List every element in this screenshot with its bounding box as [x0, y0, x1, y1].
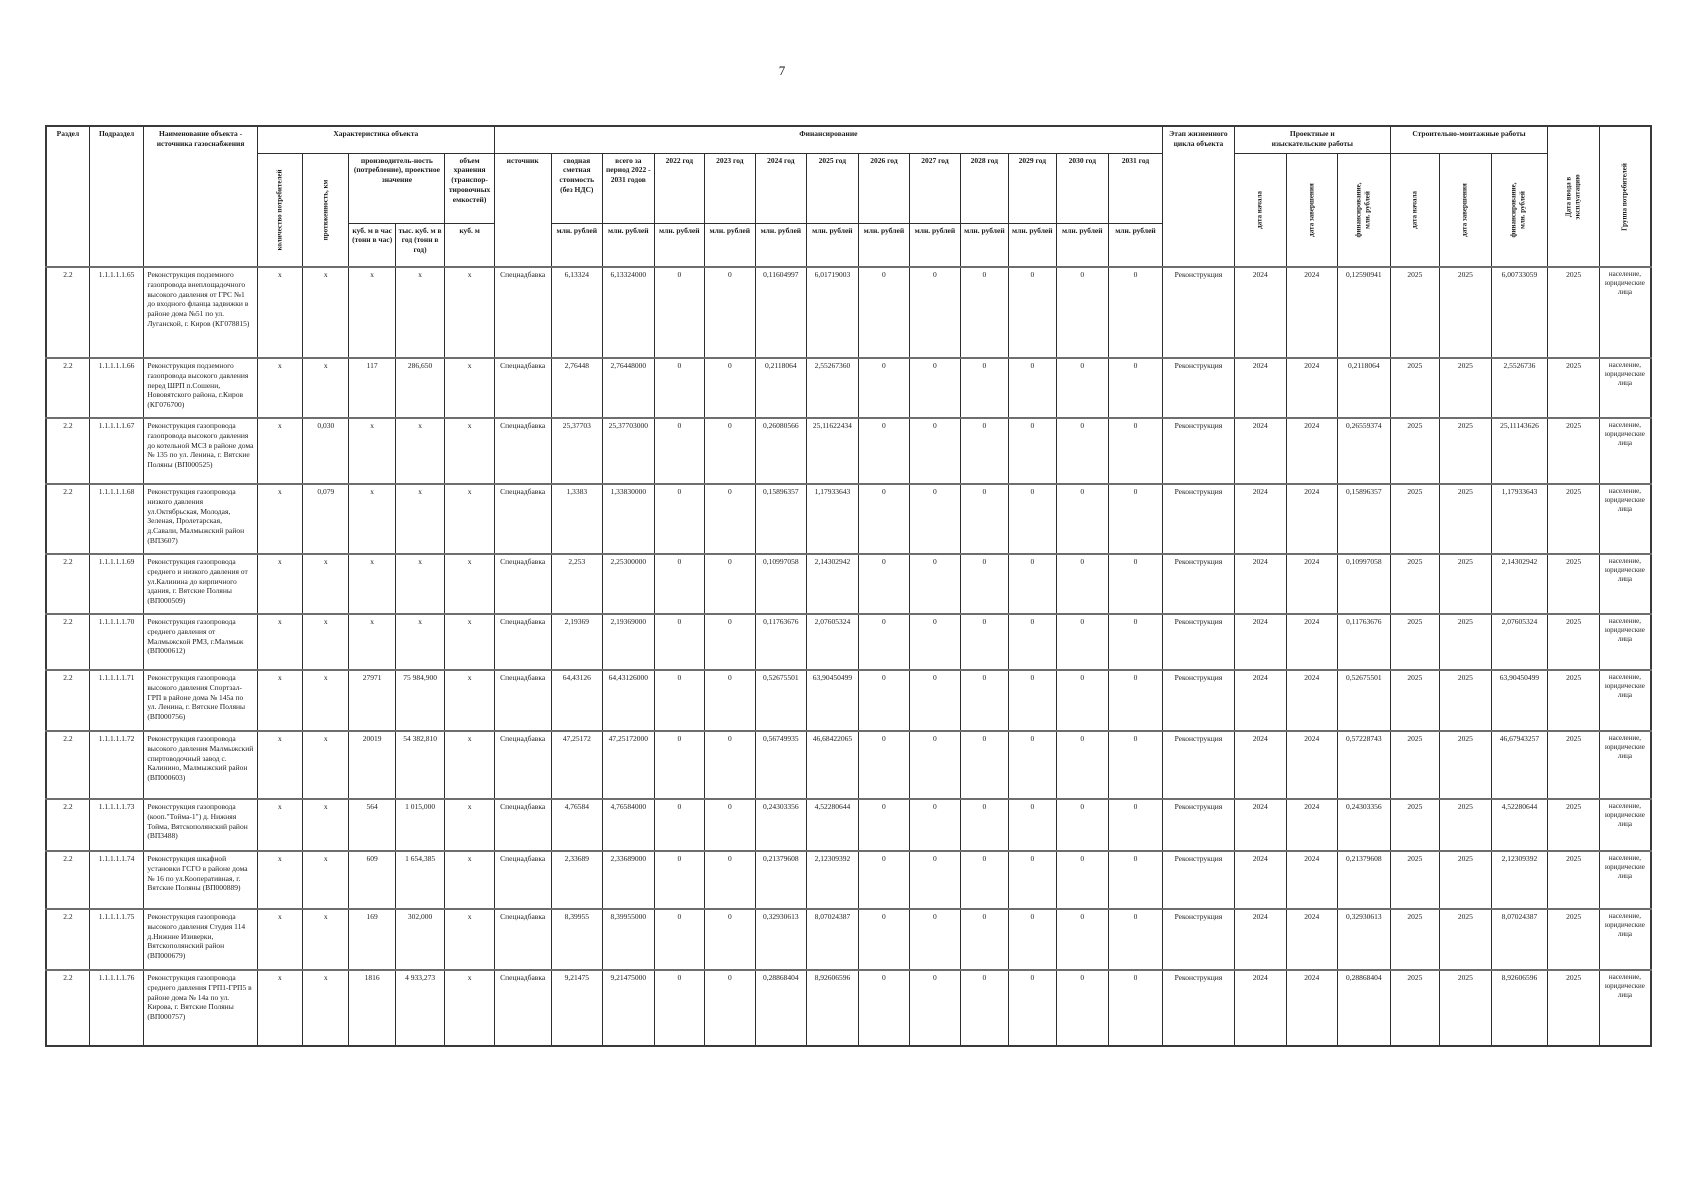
cell-podrazdel: 1.1.1.1.1.71: [89, 670, 144, 731]
cell-y2025: 8,07024387: [807, 909, 859, 970]
col-header-survey-works: Проектные и изыскательские работы: [1234, 126, 1390, 153]
cell-smr-fin: 2,5526736: [1491, 358, 1548, 418]
cell-y2031: 0: [1109, 731, 1163, 799]
col-header-year-2026: 2026 год: [858, 153, 910, 223]
cell-commissioning: 2025: [1548, 670, 1600, 731]
cell-total: 2,19369000: [603, 614, 655, 670]
cell-y2030: 0: [1056, 799, 1109, 851]
col-header-year-2029: 2029 год: [1009, 153, 1056, 223]
consumer-group-label: Группа потребителей: [1620, 132, 1629, 262]
cell-smr-fin: 2,12309392: [1491, 851, 1548, 909]
table-row: 2.21.1.1.1.1.74Реконструкция шкафной уст…: [46, 851, 1651, 909]
cell-m3h: 27971: [349, 670, 395, 731]
cell-consumers: х: [257, 267, 302, 358]
cell-smr-fin: 4,52280644: [1491, 799, 1548, 851]
cell-y2031: 0: [1109, 358, 1163, 418]
gas-program-table: Раздел Подраздел Наименование объекта - …: [45, 125, 1652, 1047]
cell-length: х: [303, 909, 349, 970]
table-row: 2.21.1.1.1.1.69Реконструкция газопровода…: [46, 554, 1651, 614]
cell-y2026: 0: [858, 851, 910, 909]
cell-smr-start: 2025: [1390, 909, 1439, 970]
cell-pir-start: 2024: [1234, 554, 1286, 614]
cell-razdel: 2.2: [46, 358, 89, 418]
cell-storage: х: [445, 731, 495, 799]
cell-y2022: 0: [654, 670, 705, 731]
cell-y2023: 0: [705, 731, 756, 799]
cell-stage: Реконструкция: [1162, 267, 1234, 358]
col-header-smr-financing: финансирование, млн. рублей: [1491, 153, 1548, 267]
cell-name: Реконструкция подземного газопровода выс…: [144, 358, 257, 418]
cell-length: х: [303, 358, 349, 418]
cell-pir-fin: 0,24303356: [1338, 799, 1391, 851]
cell-smr-fin: 6,00733059: [1491, 267, 1548, 358]
col-header-year-2028: 2028 год: [960, 153, 1008, 223]
cell-m3h: х: [349, 267, 395, 358]
cell-y2022: 0: [654, 799, 705, 851]
cell-y2030: 0: [1056, 614, 1109, 670]
cell-consumers: х: [257, 731, 302, 799]
cell-y2030: 0: [1056, 484, 1109, 554]
cell-commissioning: 2025: [1548, 554, 1600, 614]
cell-commissioning: 2025: [1548, 418, 1600, 484]
cell-smr-fin: 46,67943257: [1491, 731, 1548, 799]
cell-y2026: 0: [858, 731, 910, 799]
cell-total: 2,25300000: [603, 554, 655, 614]
cell-y2024: 0,24303356: [755, 799, 807, 851]
cell-total: 2,33689000: [603, 851, 655, 909]
unit-mln-rub: млн. рублей: [603, 223, 655, 267]
unit-mln-rub: млн. рублей: [705, 223, 756, 267]
cell-stage: Реконструкция: [1162, 484, 1234, 554]
cell-razdel: 2.2: [46, 418, 89, 484]
cell-y2026: 0: [858, 484, 910, 554]
cell-y2028: 0: [960, 670, 1008, 731]
unit-mln-rub: млн. рублей: [1009, 223, 1056, 267]
cell-y2029: 0: [1009, 670, 1056, 731]
col-header-length-km: протяженность, км: [303, 153, 349, 267]
cell-y2027: 0: [910, 909, 961, 970]
cell-y2030: 0: [1056, 909, 1109, 970]
cell-length: х: [303, 554, 349, 614]
unit-mln-rub: млн. рублей: [1056, 223, 1109, 267]
cell-y2025: 4,52280644: [807, 799, 859, 851]
cell-y2029: 0: [1009, 267, 1056, 358]
cell-source: Спецнадбавка: [494, 970, 551, 1046]
table-row: 2.21.1.1.1.1.73Реконструкция газопровода…: [46, 799, 1651, 851]
cell-y2024: 0,11763676: [755, 614, 807, 670]
cell-pir-end: 2024: [1286, 614, 1338, 670]
cell-consumers: х: [257, 358, 302, 418]
unit-mln-rub: млн. рублей: [1109, 223, 1163, 267]
cell-pir-fin: 0,2118064: [1338, 358, 1391, 418]
cell-pir-fin: 0,52675501: [1338, 670, 1391, 731]
cell-tm3y: 286,650: [395, 358, 444, 418]
col-header-m3-per-hour: куб. м в час (тонн в час): [349, 223, 395, 267]
cell-length: х: [303, 970, 349, 1046]
cell-y2022: 0: [654, 554, 705, 614]
cell-storage: х: [445, 267, 495, 358]
cell-y2025: 2,07605324: [807, 614, 859, 670]
cell-smr-start: 2025: [1390, 851, 1439, 909]
cell-razdel: 2.2: [46, 970, 89, 1046]
cell-total: 9,21475000: [603, 970, 655, 1046]
cell-m3h: х: [349, 554, 395, 614]
cell-stage: Реконструкция: [1162, 799, 1234, 851]
cell-group: население, юридические лица: [1599, 970, 1651, 1046]
cell-y2028: 0: [960, 358, 1008, 418]
cell-stage: Реконструкция: [1162, 909, 1234, 970]
cell-stage: Реконструкция: [1162, 970, 1234, 1046]
cell-y2024: 0,2118064: [755, 358, 807, 418]
cell-razdel: 2.2: [46, 799, 89, 851]
cell-y2026: 0: [858, 799, 910, 851]
cell-pir-fin: 0,12590941: [1338, 267, 1391, 358]
cell-tm3y: х: [395, 267, 444, 358]
cell-y2023: 0: [705, 554, 756, 614]
cell-length: х: [303, 799, 349, 851]
cell-group: население, юридические лица: [1599, 418, 1651, 484]
cell-pir-start: 2024: [1234, 970, 1286, 1046]
cell-smr-start: 2025: [1390, 358, 1439, 418]
cell-pir-start: 2024: [1234, 418, 1286, 484]
cell-group: население, юридические лица: [1599, 731, 1651, 799]
cell-m3h: 20019: [349, 731, 395, 799]
cell-source: Спецнадбавка: [494, 731, 551, 799]
cell-y2025: 46,68422065: [807, 731, 859, 799]
cell-pir-end: 2024: [1286, 970, 1338, 1046]
cell-smr-end: 2025: [1440, 614, 1492, 670]
cell-y2025: 6,01719003: [807, 267, 859, 358]
cell-y2030: 0: [1056, 851, 1109, 909]
cell-podrazdel: 1.1.1.1.1.65: [89, 267, 144, 358]
cell-podrazdel: 1.1.1.1.1.76: [89, 970, 144, 1046]
cell-podrazdel: 1.1.1.1.1.67: [89, 418, 144, 484]
col-header-year-2027: 2027 год: [910, 153, 961, 223]
cell-group: население, юридические лица: [1599, 851, 1651, 909]
cell-razdel: 2.2: [46, 909, 89, 970]
col-header-thous-m3-per-year: тыс. куб. м в год (тонн в год): [395, 223, 444, 267]
cell-group: население, юридические лица: [1599, 554, 1651, 614]
cell-pir-end: 2024: [1286, 909, 1338, 970]
cell-cost: 2,33689: [551, 851, 603, 909]
cell-total: 8,39955000: [603, 909, 655, 970]
cell-storage: х: [445, 909, 495, 970]
cell-smr-end: 2025: [1440, 731, 1492, 799]
cell-y2022: 0: [654, 358, 705, 418]
cell-razdel: 2.2: [46, 851, 89, 909]
cell-cost: 1,3383: [551, 484, 603, 554]
table-row: 2.21.1.1.1.1.67Реконструкция газопровода…: [46, 418, 1651, 484]
col-header-lifecycle-stage: Этап жизненного цикла объекта: [1162, 126, 1234, 267]
cell-y2030: 0: [1056, 554, 1109, 614]
cell-tm3y: 54 382,810: [395, 731, 444, 799]
cell-name: Реконструкция газопровода высокого давле…: [144, 670, 257, 731]
pir-start-date-label: дата начала: [1256, 155, 1265, 265]
cell-total: 6,13324000: [603, 267, 655, 358]
cell-y2026: 0: [858, 554, 910, 614]
cell-cost: 2,19369: [551, 614, 603, 670]
cell-razdel: 2.2: [46, 670, 89, 731]
cell-storage: х: [445, 670, 495, 731]
cell-y2030: 0: [1056, 970, 1109, 1046]
cell-consumers: х: [257, 614, 302, 670]
cell-podrazdel: 1.1.1.1.1.69: [89, 554, 144, 614]
cell-pir-fin: 0,57228743: [1338, 731, 1391, 799]
cell-consumers: х: [257, 970, 302, 1046]
col-header-smr-end-date: дата завершения: [1440, 153, 1492, 267]
cell-cost: 47,25172: [551, 731, 603, 799]
cell-pir-start: 2024: [1234, 484, 1286, 554]
cell-y2027: 0: [910, 358, 961, 418]
cell-smr-start: 2025: [1390, 614, 1439, 670]
col-header-pir-end-date: дата завершения: [1286, 153, 1338, 267]
cell-smr-fin: 2,14302942: [1491, 554, 1548, 614]
cell-commissioning: 2025: [1548, 970, 1600, 1046]
table-row: 2.21.1.1.1.1.76Реконструкция газопровода…: [46, 970, 1651, 1046]
cell-podrazdel: 1.1.1.1.1.72: [89, 731, 144, 799]
cell-cost: 25,37703: [551, 418, 603, 484]
cell-y2026: 0: [858, 418, 910, 484]
cell-razdel: 2.2: [46, 267, 89, 358]
table-header: Раздел Подраздел Наименование объекта - …: [46, 126, 1651, 267]
cell-cost: 6,13324: [551, 267, 603, 358]
cell-length: х: [303, 614, 349, 670]
cell-m3h: 1816: [349, 970, 395, 1046]
col-header-podrazdel: Подраздел: [89, 126, 144, 267]
col-header-total-period: всего за период 2022 - 2031 годов: [603, 153, 655, 223]
cell-length: х: [303, 731, 349, 799]
col-header-year-2023: 2023 год: [705, 153, 756, 223]
smr-end-date-label: дата завершения: [1461, 155, 1470, 265]
cell-pir-fin: 0,11763676: [1338, 614, 1391, 670]
cell-source: Спецнадбавка: [494, 909, 551, 970]
table-row: 2.21.1.1.1.1.70Реконструкция газопровода…: [46, 614, 1651, 670]
cell-pir-end: 2024: [1286, 731, 1338, 799]
cell-source: Спецнадбавка: [494, 614, 551, 670]
cell-y2023: 0: [705, 484, 756, 554]
cell-y2027: 0: [910, 970, 961, 1046]
cell-smr-fin: 1,17933643: [1491, 484, 1548, 554]
cell-source: Спецнадбавка: [494, 554, 551, 614]
unit-mln-rub: млн. рублей: [910, 223, 961, 267]
cell-smr-start: 2025: [1390, 670, 1439, 731]
cell-cost: 2,253: [551, 554, 603, 614]
cell-storage: х: [445, 554, 495, 614]
cell-y2028: 0: [960, 614, 1008, 670]
cell-smr-end: 2025: [1440, 970, 1492, 1046]
cell-y2024: 0,26080566: [755, 418, 807, 484]
cell-commissioning: 2025: [1548, 484, 1600, 554]
cell-smr-start: 2025: [1390, 799, 1439, 851]
cell-smr-fin: 8,07024387: [1491, 909, 1548, 970]
cell-y2022: 0: [654, 970, 705, 1046]
cell-m3h: х: [349, 614, 395, 670]
cell-cost: 64,43126: [551, 670, 603, 731]
cell-pir-start: 2024: [1234, 358, 1286, 418]
cell-name: Реконструкция шкафной установки ГСГО в р…: [144, 851, 257, 909]
unit-mln-rub: млн. рублей: [551, 223, 603, 267]
cell-commissioning: 2025: [1548, 267, 1600, 358]
cell-y2027: 0: [910, 484, 961, 554]
table-row: 2.21.1.1.1.1.75Реконструкция газопровода…: [46, 909, 1651, 970]
cell-tm3y: 1 654,385: [395, 851, 444, 909]
cell-smr-fin: 8,92606596: [1491, 970, 1548, 1046]
cell-smr-start: 2025: [1390, 267, 1439, 358]
survey-works-label: Проектные и изыскательские работы: [1262, 129, 1362, 149]
cell-smr-fin: 2,07605324: [1491, 614, 1548, 670]
cell-pir-end: 2024: [1286, 554, 1338, 614]
cell-y2031: 0: [1109, 851, 1163, 909]
cell-stage: Реконструкция: [1162, 731, 1234, 799]
cell-length: х: [303, 851, 349, 909]
col-header-construction-works: Строительно-монтажные работы: [1390, 126, 1548, 153]
cell-y2023: 0: [705, 970, 756, 1046]
cell-pir-end: 2024: [1286, 851, 1338, 909]
cell-razdel: 2.2: [46, 554, 89, 614]
cell-y2030: 0: [1056, 418, 1109, 484]
cell-m3h: х: [349, 484, 395, 554]
cell-cost: 9,21475: [551, 970, 603, 1046]
cell-podrazdel: 1.1.1.1.1.75: [89, 909, 144, 970]
cell-smr-end: 2025: [1440, 267, 1492, 358]
cell-storage: х: [445, 358, 495, 418]
cell-group: население, юридические лица: [1599, 670, 1651, 731]
cell-commissioning: 2025: [1548, 799, 1600, 851]
cell-consumers: х: [257, 799, 302, 851]
cell-group: население, юридические лица: [1599, 267, 1651, 358]
cell-stage: Реконструкция: [1162, 670, 1234, 731]
cell-smr-end: 2025: [1440, 554, 1492, 614]
cell-source: Спецнадбавка: [494, 851, 551, 909]
cell-podrazdel: 1.1.1.1.1.66: [89, 358, 144, 418]
cell-y2025: 2,55267360: [807, 358, 859, 418]
cell-smr-start: 2025: [1390, 554, 1439, 614]
cell-y2028: 0: [960, 267, 1008, 358]
cell-commissioning: 2025: [1548, 731, 1600, 799]
cell-y2027: 0: [910, 614, 961, 670]
cell-y2025: 25,11622434: [807, 418, 859, 484]
cell-total: 64,43126000: [603, 670, 655, 731]
length-km-label: протяженность, км: [321, 155, 330, 265]
cell-y2025: 2,12309392: [807, 851, 859, 909]
cell-y2029: 0: [1009, 358, 1056, 418]
cell-pir-fin: 0,21379608: [1338, 851, 1391, 909]
smr-financing-label: финансирование, млн. рублей: [1510, 182, 1529, 238]
col-header-m3: куб. м: [445, 223, 495, 267]
cell-y2022: 0: [654, 267, 705, 358]
cell-y2022: 0: [654, 418, 705, 484]
cell-y2028: 0: [960, 731, 1008, 799]
cell-y2029: 0: [1009, 484, 1056, 554]
cell-y2031: 0: [1109, 267, 1163, 358]
table-row: 2.21.1.1.1.1.65Реконструкция подземного …: [46, 267, 1651, 358]
cell-y2031: 0: [1109, 799, 1163, 851]
cell-pir-fin: 0,15896357: [1338, 484, 1391, 554]
cell-name: Реконструкция газопровода высокого давле…: [144, 731, 257, 799]
cell-smr-end: 2025: [1440, 484, 1492, 554]
cell-smr-fin: 63,90450499: [1491, 670, 1548, 731]
cell-y2027: 0: [910, 851, 961, 909]
cell-y2022: 0: [654, 731, 705, 799]
cell-y2031: 0: [1109, 418, 1163, 484]
cell-total: 4,76584000: [603, 799, 655, 851]
cell-pir-start: 2024: [1234, 267, 1286, 358]
cell-y2027: 0: [910, 731, 961, 799]
cell-consumers: х: [257, 484, 302, 554]
cell-source: Спецнадбавка: [494, 670, 551, 731]
cell-tm3y: х: [395, 418, 444, 484]
table-row: 2.21.1.1.1.1.66Реконструкция подземного …: [46, 358, 1651, 418]
cell-y2028: 0: [960, 484, 1008, 554]
cell-source: Спецнадбавка: [494, 799, 551, 851]
cell-pir-end: 2024: [1286, 418, 1338, 484]
col-header-financing: Финансирование: [494, 126, 1162, 153]
cell-y2024: 0,52675501: [755, 670, 807, 731]
cell-consumers: х: [257, 851, 302, 909]
cell-y2024: 0,56749935: [755, 731, 807, 799]
cell-y2023: 0: [705, 358, 756, 418]
cell-stage: Реконструкция: [1162, 418, 1234, 484]
cell-name: Реконструкция подземного газопровода вне…: [144, 267, 257, 358]
cell-length: х: [303, 267, 349, 358]
col-header-year-2030: 2030 год: [1056, 153, 1109, 223]
col-header-year-2022: 2022 год: [654, 153, 705, 223]
cell-y2024: 0,21379608: [755, 851, 807, 909]
cell-pir-fin: 0,26559374: [1338, 418, 1391, 484]
cell-consumers: х: [257, 554, 302, 614]
cell-y2023: 0: [705, 851, 756, 909]
cell-cost: 2,76448: [551, 358, 603, 418]
cell-storage: х: [445, 851, 495, 909]
cell-y2025: 2,14302942: [807, 554, 859, 614]
cell-pir-end: 2024: [1286, 484, 1338, 554]
col-header-consumer-group: Группа потребителей: [1599, 126, 1651, 267]
cell-y2025: 63,90450499: [807, 670, 859, 731]
cell-source: Спецнадбавка: [494, 484, 551, 554]
col-header-pir-start-date: дата начала: [1234, 153, 1286, 267]
unit-mln-rub: млн. рублей: [654, 223, 705, 267]
cell-y2030: 0: [1056, 267, 1109, 358]
cell-y2027: 0: [910, 670, 961, 731]
table-row: 2.21.1.1.1.1.71Реконструкция газопровода…: [46, 670, 1651, 731]
cell-length: х: [303, 670, 349, 731]
cell-y2025: 8,92606596: [807, 970, 859, 1046]
cell-y2031: 0: [1109, 670, 1163, 731]
col-header-object-name: Наименование объекта - источника газосна…: [144, 126, 257, 267]
cell-storage: х: [445, 799, 495, 851]
cell-smr-fin: 25,11143626: [1491, 418, 1548, 484]
cell-pir-start: 2024: [1234, 670, 1286, 731]
cell-length: 0,079: [303, 484, 349, 554]
cell-smr-end: 2025: [1440, 418, 1492, 484]
cell-y2027: 0: [910, 267, 961, 358]
cell-m3h: 609: [349, 851, 395, 909]
commissioning-date-label: Дата ввода в эксплуатацию: [1564, 169, 1583, 225]
cell-stage: Реконструкция: [1162, 358, 1234, 418]
cell-source: Спецнадбавка: [494, 267, 551, 358]
cell-commissioning: 2025: [1548, 358, 1600, 418]
col-header-characteristics: Характеристика объекта: [257, 126, 494, 153]
cell-pir-start: 2024: [1234, 731, 1286, 799]
cell-podrazdel: 1.1.1.1.1.68: [89, 484, 144, 554]
cell-y2024: 0,15896357: [755, 484, 807, 554]
cell-total: 1,33830000: [603, 484, 655, 554]
cell-y2027: 0: [910, 799, 961, 851]
cell-y2022: 0: [654, 484, 705, 554]
cell-name: Реконструкция газопровода среднего и низ…: [144, 554, 257, 614]
cell-smr-start: 2025: [1390, 731, 1439, 799]
cell-y2024: 0,28868404: [755, 970, 807, 1046]
